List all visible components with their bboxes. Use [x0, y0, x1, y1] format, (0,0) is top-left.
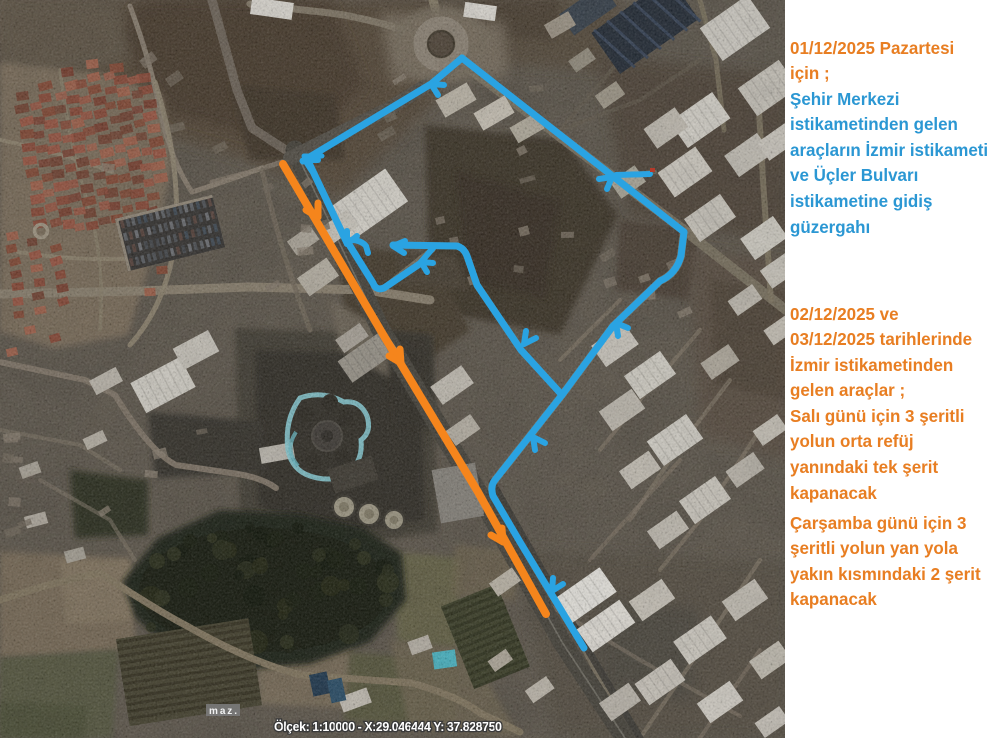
svg-text:Ölçek: 1:10000 - X:29.046444 Y: Ölçek: 1:10000 - X:29.046444 Y: 37.82875…: [274, 719, 502, 734]
